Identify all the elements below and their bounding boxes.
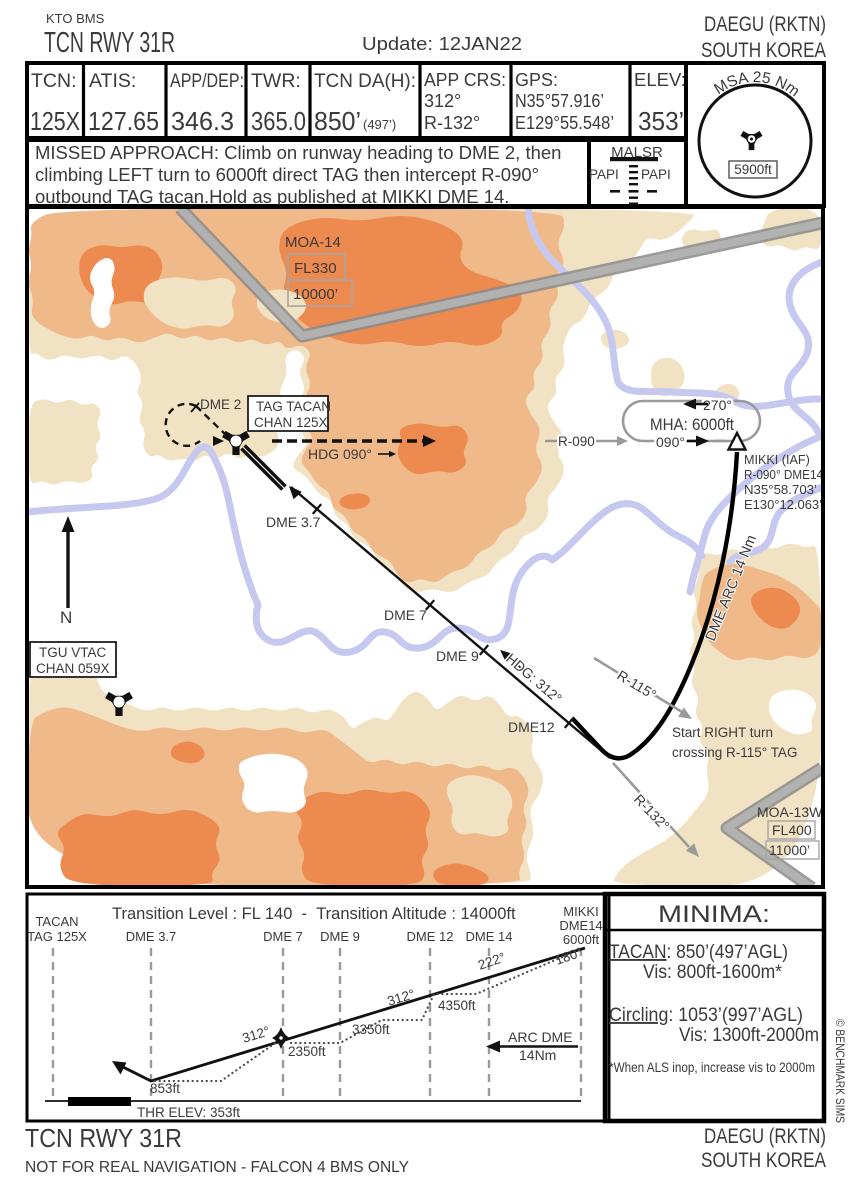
svg-text:5900ft: 5900ft xyxy=(734,162,772,177)
svg-text:KTO BMS: KTO BMS xyxy=(46,11,105,26)
svg-text:DME 7: DME 7 xyxy=(263,929,303,944)
svg-text:MIKKI: MIKKI xyxy=(563,904,598,919)
svg-text:PAPI: PAPI xyxy=(641,167,671,182)
svg-text:TACAN: TACAN xyxy=(35,914,78,929)
svg-text:TCN:: TCN: xyxy=(31,70,77,92)
svg-text:R-132°: R-132° xyxy=(424,113,480,133)
svg-text:090°: 090° xyxy=(656,434,685,450)
svg-text:DAEGU (RKTN): DAEGU (RKTN) xyxy=(704,1125,826,1148)
svg-text:Transition Level : FL 140 -: Transition Level : FL 140 - Transition A… xyxy=(112,905,516,923)
svg-text:APP CRS:: APP CRS: xyxy=(424,70,506,90)
svg-text:(497’): (497’) xyxy=(363,117,396,132)
svg-text:TCN DA(H):: TCN DA(H): xyxy=(314,70,416,92)
svg-text:HDG 090°: HDG 090° xyxy=(308,446,372,462)
svg-text:2350ft: 2350ft xyxy=(288,1044,326,1059)
svg-text:312°: 312° xyxy=(424,91,461,111)
svg-text:CHAN 059X: CHAN 059X xyxy=(36,661,110,676)
svg-text:DAEGU (RKTN): DAEGU (RKTN) xyxy=(704,13,826,36)
svg-text:ARC DME: ARC DME xyxy=(508,1029,573,1045)
svg-text:365.0: 365.0 xyxy=(251,106,306,136)
svg-text:crossing R-115° TAG: crossing R-115° TAG xyxy=(672,745,797,760)
svg-text:Vis: 800ft-1600m*: Vis: 800ft-1600m* xyxy=(643,962,783,983)
svg-text:3350ft: 3350ft xyxy=(352,1022,390,1037)
svg-text:MINIMA:: MINIMA: xyxy=(658,901,770,928)
svg-text:DME 14: DME 14 xyxy=(466,929,513,944)
svg-text:346.3: 346.3 xyxy=(171,106,234,136)
svg-text:127.65: 127.65 xyxy=(88,106,159,136)
svg-text:11000’: 11000’ xyxy=(769,842,810,858)
svg-text:DME 9: DME 9 xyxy=(320,929,360,944)
svg-text:TAG TACAN: TAG TACAN xyxy=(256,399,331,414)
svg-text:4350ft: 4350ft xyxy=(438,998,476,1013)
svg-text:DME 2: DME 2 xyxy=(200,397,241,412)
svg-text:353’: 353’ xyxy=(638,106,684,136)
svg-text:E130°12.063’: E130°12.063’ xyxy=(744,498,822,512)
svg-text:853ft: 853ft xyxy=(150,1081,180,1096)
svg-text:MOA-14: MOA-14 xyxy=(285,234,341,251)
svg-text:Start RIGHT turn: Start RIGHT turn xyxy=(672,725,773,740)
svg-text:MOA-13W: MOA-13W xyxy=(757,804,823,820)
svg-text:6000ft: 6000ft xyxy=(563,932,600,947)
svg-text:DME 12: DME 12 xyxy=(407,929,454,944)
svg-text:TGU VTAC: TGU VTAC xyxy=(39,645,107,660)
svg-text:MIKKI (IAF): MIKKI (IAF) xyxy=(744,453,810,467)
svg-text:DME12: DME12 xyxy=(508,719,555,735)
svg-text:ATIS:: ATIS: xyxy=(89,70,136,92)
svg-text:TACAN: 850’(497’AGL): TACAN: 850’(497’AGL) xyxy=(609,942,788,963)
svg-text:N35°58.703’: N35°58.703’ xyxy=(744,483,817,497)
svg-text:14Nm: 14Nm xyxy=(519,1047,556,1063)
svg-text:© BENCHMARK SIMS: © BENCHMARK SIMS xyxy=(833,1019,845,1123)
svg-text:10000’: 10000’ xyxy=(293,286,338,303)
svg-text:R-090: R-090 xyxy=(558,434,595,449)
svg-text:DME 7: DME 7 xyxy=(384,607,427,623)
svg-text:FL400: FL400 xyxy=(772,822,812,838)
svg-text:Update: 12JAN22: Update: 12JAN22 xyxy=(362,34,522,54)
svg-text:DME 3.7: DME 3.7 xyxy=(266,514,321,530)
svg-text:DME 9: DME 9 xyxy=(436,648,479,664)
svg-text:FL330: FL330 xyxy=(294,260,337,277)
svg-text:outbound TAG tacan.Hold as pub: outbound TAG tacan.Hold as published at … xyxy=(35,186,509,207)
svg-text:SOUTH KOREA: SOUTH KOREA xyxy=(701,39,826,62)
svg-text:Vis: 1300ft-2000m: Vis: 1300ft-2000m xyxy=(679,1025,819,1046)
svg-text:DME 3.7: DME 3.7 xyxy=(126,929,177,944)
svg-text:NOT FOR REAL NAVIGATION - FALC: NOT FOR REAL NAVIGATION - FALCON 4 BMS O… xyxy=(25,1159,409,1176)
svg-text:Circling: 1053’(997’AGL): Circling: 1053’(997’AGL) xyxy=(609,1005,803,1026)
svg-text:ELEV:: ELEV: xyxy=(634,69,686,90)
svg-text:125X: 125X xyxy=(30,106,80,136)
svg-text:TWR:: TWR: xyxy=(251,70,301,92)
svg-text:TCN RWY 31R: TCN RWY 31R xyxy=(44,27,175,59)
svg-text:850’: 850’ xyxy=(314,106,361,136)
svg-text:E129°55.548’: E129°55.548’ xyxy=(515,113,614,133)
svg-text:TCN RWY 31R: TCN RWY 31R xyxy=(25,1123,182,1153)
svg-text:N: N xyxy=(60,608,72,627)
svg-text:SOUTH KOREA: SOUTH KOREA xyxy=(701,1149,826,1172)
svg-text:N35°57.916’: N35°57.916’ xyxy=(515,91,604,111)
svg-text:GPS:: GPS: xyxy=(515,70,558,90)
svg-text:THR ELEV: 353ft: THR ELEV: 353ft xyxy=(137,1105,240,1120)
svg-text:TAG 125X: TAG 125X xyxy=(27,929,87,944)
svg-text:MHA: 6000ft: MHA: 6000ft xyxy=(650,416,734,434)
svg-text:APP/DEP:: APP/DEP: xyxy=(170,70,244,92)
svg-text:DME14: DME14 xyxy=(559,918,602,933)
svg-text:climbing LEFT turn to 6000ft d: climbing LEFT turn to 6000ft direct TAG … xyxy=(35,164,539,185)
svg-text:MISSED APPROACH: Climb on runw: MISSED APPROACH: Climb on runway heading… xyxy=(35,142,561,163)
svg-text:*When ALS inop, increase vis t: *When ALS inop, increase vis to 2000m xyxy=(609,1060,815,1075)
svg-text:CHAN 125X: CHAN 125X xyxy=(254,415,328,430)
svg-text:PAPI: PAPI xyxy=(589,167,619,182)
svg-text:R-090° DME14: R-090° DME14 xyxy=(744,468,823,482)
